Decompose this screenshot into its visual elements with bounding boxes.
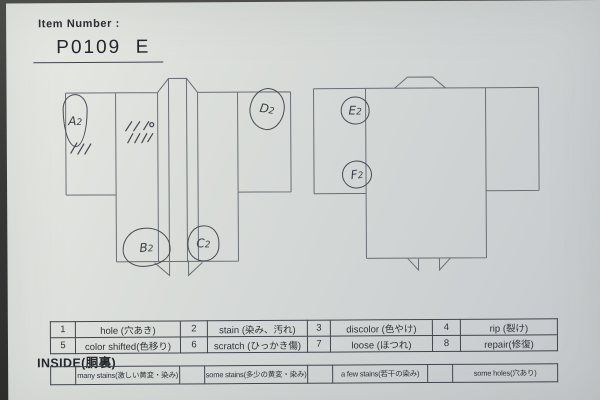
inside-checkbox-cell	[428, 364, 453, 382]
annotation-subscript: 2	[205, 241, 211, 250]
annotation-subscript: 2	[268, 107, 275, 117]
annotation-circle-e2: E2	[341, 96, 370, 124]
annotation-letter: A	[68, 115, 76, 127]
paper-sheet: Item Number : P0109 E A2	[6, 0, 600, 400]
inside-option-label: some stains(多少の黄変・染み)	[205, 365, 308, 384]
defect-row-2: 5 color shifted(色移り) 6 scratch (ひっかき傷) 7…	[50, 335, 557, 354]
inside-checkbox-cell	[308, 365, 333, 383]
inside-checkbox-cell	[180, 366, 205, 384]
annotation-letter: E	[348, 104, 356, 116]
defect-code: 4	[432, 319, 460, 335]
defect-label: scratch (ひっかき傷)	[207, 336, 307, 353]
annotation-letter: C	[196, 237, 204, 249]
defect-label: discolor (色やけ)	[330, 320, 432, 337]
inside-condition-table: many stains(激しい黄変・染み) some stains(多少の黄変・…	[50, 363, 558, 385]
defect-code: 1	[50, 322, 75, 338]
defect-label: rip (裂け)	[460, 319, 557, 336]
annotation-circle-c2: C2	[187, 225, 219, 261]
defect-code: 7	[307, 336, 330, 352]
annotation-subscript: 2	[356, 108, 362, 117]
defect-code: 3	[307, 320, 330, 336]
photo-of-inspection-sheet: Item Number : P0109 E A2	[0, 0, 600, 400]
defect-label: hole (穴あき)	[75, 321, 180, 338]
inside-option-label: many stains(激しい黄変・染み)	[76, 366, 180, 385]
inside-option-label: a few stains(若干の染み)	[333, 365, 428, 384]
inside-option-label: some holes(穴あり)	[453, 364, 558, 383]
defect-label: stain (染み、汚れ)	[207, 320, 307, 337]
annotation-subscript: 2	[148, 245, 154, 254]
defect-legend-table: 1 hole (穴あき) 2 stain (染み、汚れ) 3 discolor …	[50, 318, 558, 354]
annotation-subscript: 2	[357, 172, 364, 182]
inside-row: many stains(激しい黄変・染み) some stains(多少の黄変・…	[51, 364, 558, 385]
defect-label: loose (ほつれ)	[330, 336, 432, 353]
inside-checkbox-cell	[51, 367, 76, 385]
defect-label: repair(修復)	[460, 335, 557, 352]
defect-code: 8	[432, 335, 460, 351]
annotation-subscript: 2	[76, 119, 82, 128]
defect-code: 6	[180, 337, 207, 353]
defect-code: 2	[180, 321, 207, 337]
